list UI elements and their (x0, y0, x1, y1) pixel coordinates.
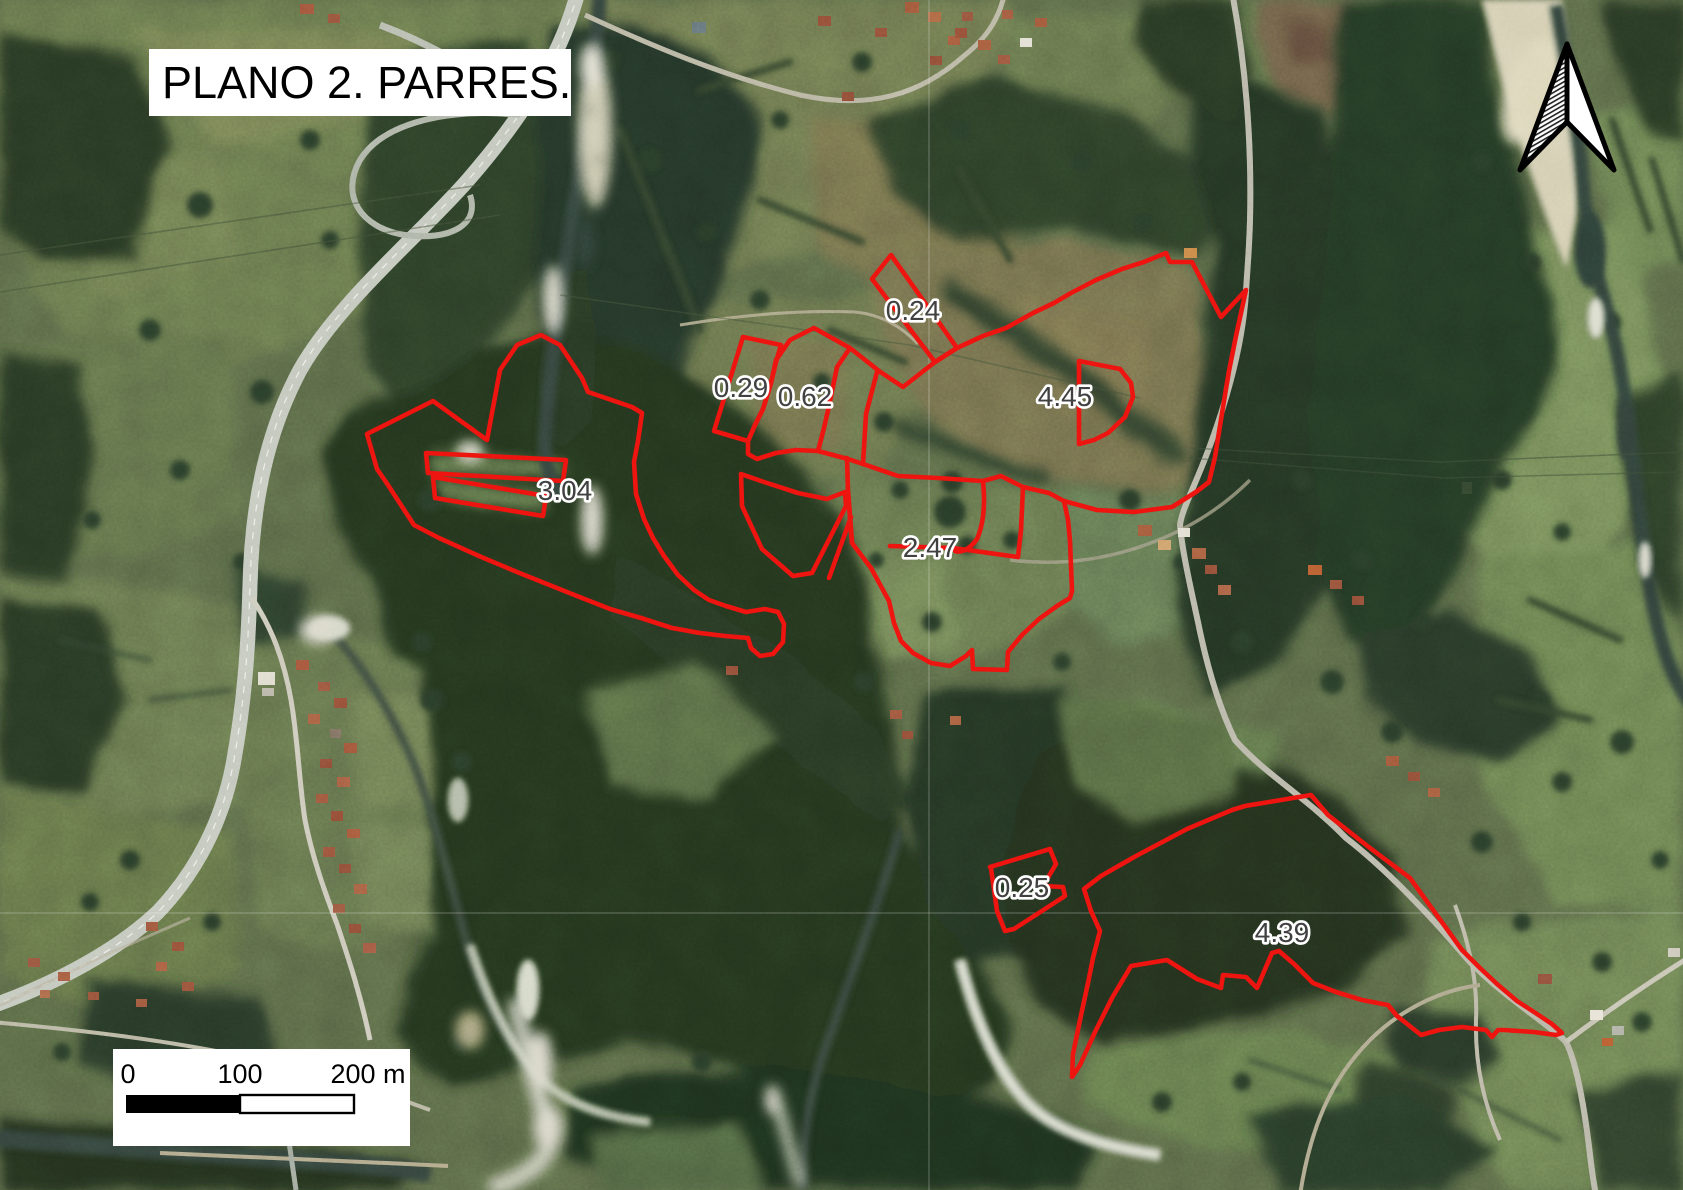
svg-text:0.25: 0.25 (995, 872, 1050, 903)
svg-text:PLANO 2. PARRES.: PLANO 2. PARRES. (162, 57, 571, 108)
svg-text:0.29: 0.29 (714, 372, 769, 403)
svg-text:3.04: 3.04 (538, 475, 593, 506)
svg-text:100: 100 (217, 1059, 262, 1089)
svg-text:4.39: 4.39 (1255, 917, 1310, 948)
svg-text:2.47: 2.47 (903, 532, 958, 563)
svg-text:4.45: 4.45 (1038, 381, 1093, 412)
svg-text:0.24: 0.24 (886, 295, 941, 326)
svg-text:0: 0 (120, 1059, 135, 1089)
svg-text:0.62: 0.62 (778, 381, 833, 412)
svg-text:200 m: 200 m (330, 1059, 405, 1089)
